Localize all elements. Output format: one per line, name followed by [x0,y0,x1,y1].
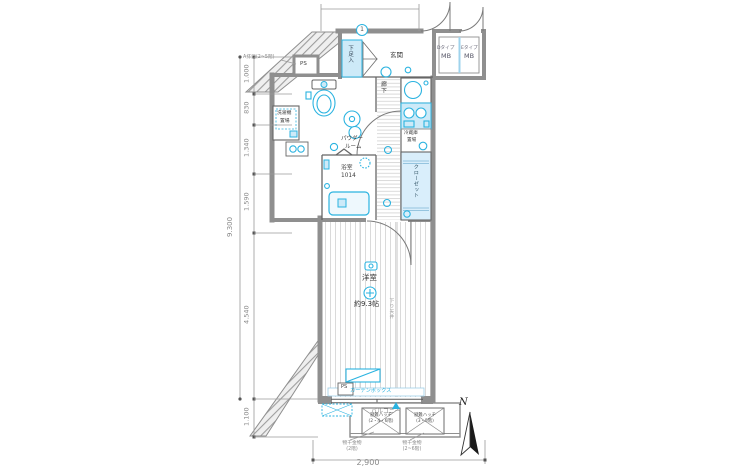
dim-total-height: 9.300 [227,207,235,247]
mb-d-label: MB [441,53,451,60]
entry-door-arc [421,2,450,31]
fitting-right-label-2: (2~6階) [388,447,436,452]
top-extension-lines [321,4,419,31]
curtain-box-label: カーテンボックス [350,389,391,395]
room-size-label: 約9.3帖 [354,301,379,309]
room-device-icon [365,262,377,270]
mb-d-type-label: Dタイプ [437,46,454,51]
shoe-cabinet-label: 下足入 [347,45,353,63]
ps-top-label: PS [300,61,307,67]
entrance-light-icon [381,67,391,77]
fitting-left-label-1: 物干金物 [330,441,374,446]
toilet-icon [306,80,336,116]
dim-seg-3: 1.340 [243,128,250,168]
dim-seg-4: 1.590 [243,182,250,222]
north-arrow-icon [461,412,479,455]
ps-bottom-label: PS [341,385,347,391]
shoe-cabinet-doors [363,42,377,76]
washer-label-2: 置場 [280,119,290,124]
powder-room-label-2: ルーム [345,144,361,150]
room-label: 洋室 [362,274,377,282]
dim-seg-6: 1.100 [243,397,250,437]
mb-door-arc [459,7,483,31]
hatch-left-label-2: (2・4・6階) [363,420,399,425]
bathroom-label: 浴室 [341,165,353,171]
outdoor-unit-icon [322,404,352,416]
corridor-floor [377,78,400,220]
bathroom-size-label: 1014 [341,173,356,179]
bathtub-icon [329,192,369,215]
bath-vent-icon [360,158,370,168]
hatch-wall-bottomleft [250,338,320,436]
dim-seg-5: 4.540 [243,295,250,335]
fridge-outlet-icon [419,142,427,150]
fridge-label-2: 置場 [407,138,416,143]
window-stub-left [318,396,332,404]
unit-number-badge: 1 [356,24,368,36]
hatch-right-label-2: (3・5階) [407,420,443,425]
north-label: N [459,397,468,408]
mb-e-type-label: Eタイプ [461,46,478,51]
fitting-right-label-1: 物干金物 [388,441,436,446]
floorplan-drawing [0,0,730,470]
corridor-label: 廊下 [379,81,385,94]
fitting-left-label-2: (2階) [330,447,374,452]
dropped-ceiling-label: 下り天井 [388,298,393,319]
dim-seg-2: 830 [243,88,250,128]
floorplan-canvas: 玄関 下足入 Dタイプ MB Eタイプ MB PS PS 洗濯機 置場 パウダー… [0,0,730,470]
dim-bottom-width: 2,900 [346,459,390,468]
mb-e-label: MB [464,53,474,60]
powder-room-label-1: パウダー [341,136,363,142]
fridge-label-1: 冷蔵庫 [404,131,418,136]
closet-label: クローゼット [412,164,418,198]
entrance-label: 玄関 [390,52,403,59]
washer-label-1: 洗濯機 [277,111,291,116]
